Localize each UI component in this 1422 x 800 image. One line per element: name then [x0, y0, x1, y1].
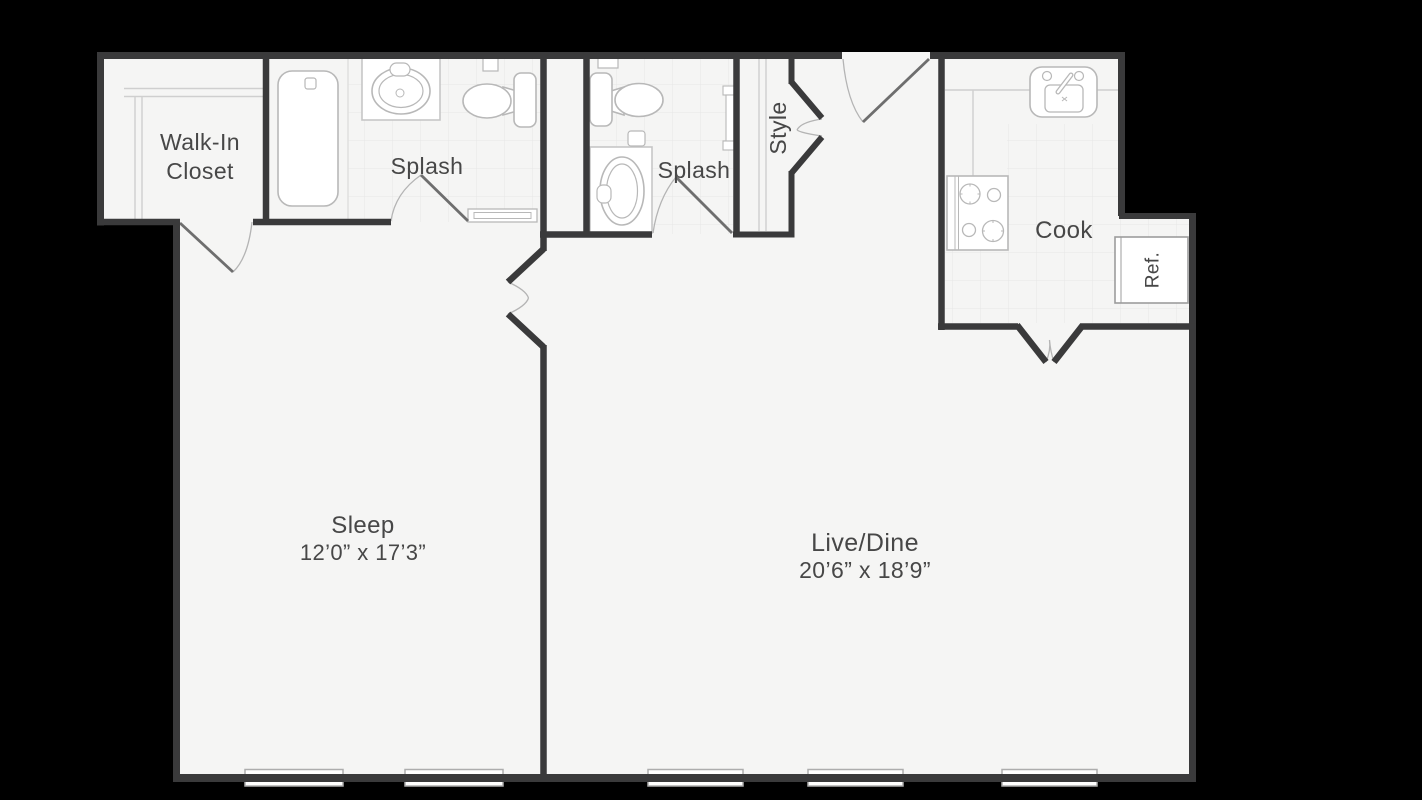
bathtub — [278, 71, 338, 206]
room-label-style-closet: Style — [765, 101, 791, 154]
room-dimensions-sleep: 12’0” x 17’3” — [300, 540, 426, 565]
burner — [988, 189, 1001, 202]
burner — [963, 224, 976, 237]
faucet-handle — [1075, 72, 1084, 81]
toilet-bowl — [463, 84, 511, 118]
room-label-bath1: Splash — [391, 153, 464, 179]
kitchen-tile-lower — [945, 250, 1007, 323]
faucet-handle — [1043, 72, 1052, 81]
toilet-tank — [514, 73, 536, 127]
room-label-walk-in-closet-line1: Walk-In — [160, 129, 240, 155]
bathtub-faucet — [305, 78, 316, 89]
sink-faucet — [390, 63, 410, 76]
shower-threshold-inner — [474, 213, 531, 219]
sink-drain — [396, 89, 404, 97]
room-label-walk-in-closet-line2: Closet — [166, 158, 234, 184]
room-label-kitchen: Cook — [1035, 217, 1093, 244]
sink-faucet — [628, 131, 645, 146]
burner — [983, 221, 1004, 242]
toilet-paper-holder — [483, 57, 498, 71]
floor-plan: Walk-In Closet Splash Splash Style Cook … — [0, 0, 1422, 800]
floor-plan-canvas: Walk-In Closet Splash Splash Style Cook … — [0, 0, 1422, 800]
burner — [960, 184, 980, 204]
room-label-live-dine: Live/Dine — [811, 529, 919, 557]
room-label-sleep: Sleep — [331, 512, 394, 539]
room-dimensions-live-dine: 20’6” x 18’9” — [799, 557, 931, 583]
soap-dish — [597, 185, 611, 203]
toilet-bowl — [615, 84, 663, 117]
toilet-tank — [590, 73, 612, 126]
room-label-bath2: Splash — [658, 157, 731, 183]
label-refrigerator: Ref. — [1143, 252, 1164, 288]
